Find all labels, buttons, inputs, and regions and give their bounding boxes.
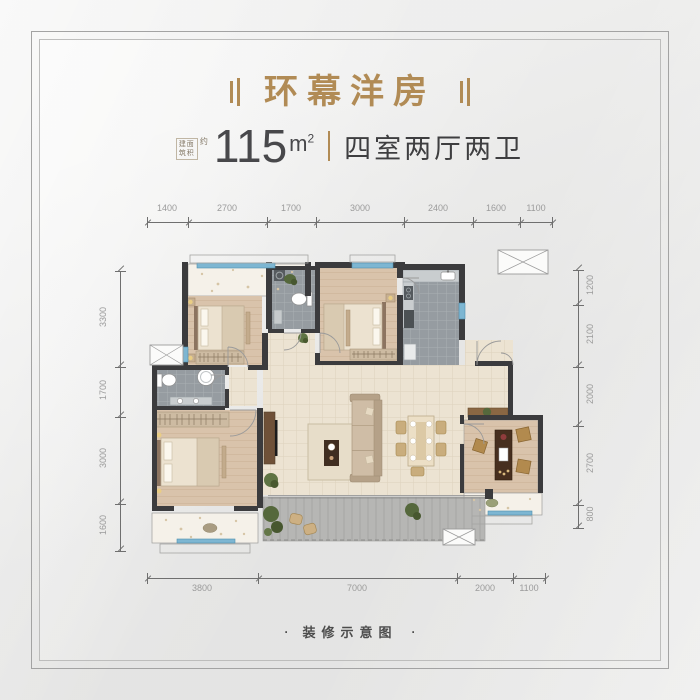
caption-dot-left: · <box>284 625 288 639</box>
dim-label: 2000 <box>585 364 595 424</box>
dim-tick <box>520 217 521 228</box>
dim-label: 3000 <box>98 428 108 488</box>
dim-line-left <box>120 271 121 551</box>
page-title: 环幕洋房 <box>264 74 436 110</box>
dim-tick <box>147 573 148 584</box>
dim-tick <box>115 367 126 368</box>
dim-label: 1700 <box>261 203 321 213</box>
floor-plan <box>140 248 560 566</box>
dim-label: 2100 <box>585 304 595 364</box>
dim-tick <box>258 573 259 584</box>
dim-tick <box>147 217 148 228</box>
caption-text: 装修示意图 <box>302 622 397 641</box>
caption-row: · 装修示意图 · <box>0 622 700 641</box>
caption-dot-right: · <box>412 625 416 639</box>
dim-tick <box>552 217 553 228</box>
dim-tick <box>115 417 126 418</box>
dim-label: 1100 <box>499 583 559 593</box>
dim-label: 2400 <box>408 203 468 213</box>
dim-tick <box>573 505 584 506</box>
page-title-row: 环幕洋房 <box>0 74 700 110</box>
dim-line-bottom <box>147 578 545 579</box>
dim-label: 3000 <box>330 203 390 213</box>
dim-label: 1100 <box>506 203 566 213</box>
dim-tick <box>115 271 126 272</box>
dim-tick <box>573 426 584 427</box>
area-unit-base: m <box>289 131 307 156</box>
dim-tick <box>404 217 405 228</box>
dim-tick <box>473 217 474 228</box>
area-label: 建面 筑积 约 <box>176 138 208 160</box>
area-approx: 约 <box>200 136 208 147</box>
area-label-box: 建面 筑积 <box>176 138 198 160</box>
dim-label: 3800 <box>172 583 232 593</box>
dim-tick <box>267 217 268 228</box>
area-value: 115 <box>214 124 287 168</box>
dim-tick <box>573 305 584 306</box>
area-unit: m2 <box>289 131 314 157</box>
dim-label: 800 <box>585 484 595 544</box>
title-bars-right-icon <box>460 77 470 107</box>
dim-tick <box>188 217 189 228</box>
dim-tick <box>316 217 317 228</box>
dim-label: 1700 <box>98 360 108 420</box>
dim-label: 3300 <box>98 287 108 347</box>
dim-line-right <box>578 270 579 528</box>
dim-label: 1400 <box>137 203 197 213</box>
dim-tick <box>115 551 126 552</box>
dim-tick <box>115 504 126 505</box>
subtitle-row: 建面 筑积 约 115 m2 四室两厅两卫 <box>0 124 700 168</box>
dim-tick <box>573 528 584 529</box>
dim-line-top <box>147 222 552 223</box>
area-unit-sup: 2 <box>307 132 314 146</box>
dim-tick <box>573 367 584 368</box>
room-spec: 四室两厅两卫 <box>344 127 524 166</box>
dim-label: 1600 <box>98 495 108 555</box>
dim-label: 7000 <box>327 583 387 593</box>
title-bars-left-icon <box>230 77 240 107</box>
subtitle-divider <box>328 131 330 161</box>
dim-label: 2700 <box>197 203 257 213</box>
bedroom-3-furniture <box>155 412 229 494</box>
page-canvas: 环幕洋房 建面 筑积 约 115 m2 四室两厅两卫 1400 2700 170… <box>0 0 700 700</box>
dim-tick <box>573 270 584 271</box>
area-label-line1: 建面 <box>179 141 195 148</box>
area-label-line2: 筑积 <box>179 150 195 157</box>
